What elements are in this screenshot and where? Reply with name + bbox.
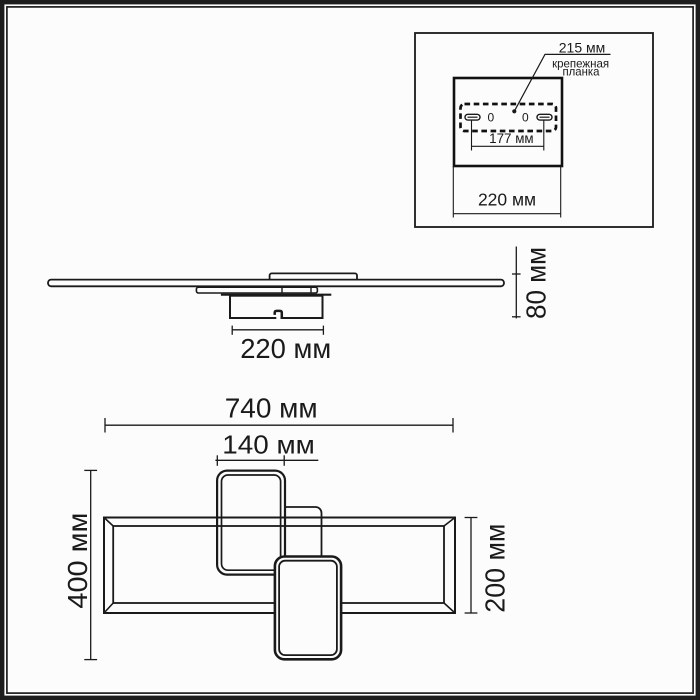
svg-text:0: 0 — [487, 110, 494, 124]
svg-text:80 мм: 80 мм — [521, 247, 552, 319]
svg-text:0: 0 — [522, 110, 529, 124]
svg-text:200 мм: 200 мм — [480, 524, 511, 613]
svg-text:215 мм: 215 мм — [559, 40, 606, 56]
svg-text:планка: планка — [563, 65, 600, 79]
svg-text:220 мм: 220 мм — [240, 333, 331, 364]
svg-text:740 мм: 740 мм — [225, 393, 318, 424]
svg-text:400 мм: 400 мм — [62, 513, 93, 609]
svg-text:140 мм: 140 мм — [222, 430, 315, 460]
svg-text:220 мм: 220 мм — [478, 190, 536, 210]
svg-text:177 мм: 177 мм — [489, 131, 534, 146]
